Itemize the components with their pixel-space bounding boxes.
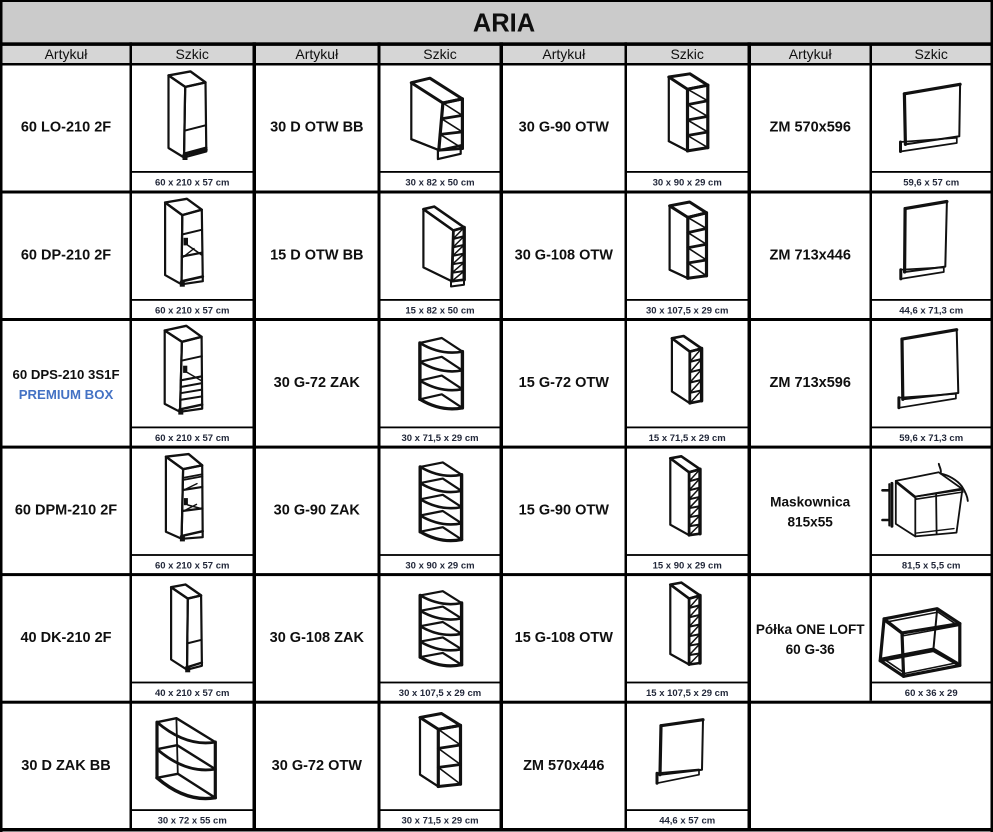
svg-text:30 G-108 ZAK: 30 G-108 ZAK [270,630,365,646]
svg-text:Szkic: Szkic [914,46,947,62]
svg-text:15 x 82 x 50 cm: 15 x 82 x 50 cm [405,305,474,316]
svg-text:59,6 x 57 cm: 59,6 x 57 cm [903,177,959,188]
svg-text:60 DPS-210 3S1F: 60 DPS-210 3S1F [12,367,119,382]
svg-text:40 DK-210 2F: 40 DK-210 2F [20,630,111,646]
svg-text:ZM 570x446: ZM 570x446 [523,758,604,774]
svg-text:30 x 71,5 x 29 cm: 30 x 71,5 x 29 cm [401,433,478,444]
svg-text:60 x 36 x 29: 60 x 36 x 29 [905,688,958,699]
svg-text:15 G-108 OTW: 15 G-108 OTW [515,630,614,646]
svg-text:ZM 713x446: ZM 713x446 [769,248,850,264]
svg-text:15 G-72 OTW: 15 G-72 OTW [519,375,610,391]
svg-text:Artykuł: Artykuł [295,46,339,62]
svg-text:30 x 72 x 55 cm: 30 x 72 x 55 cm [158,816,227,827]
svg-text:44,6 x 71,3 cm: 44,6 x 71,3 cm [899,305,963,316]
svg-text:Artykuł: Artykuł [789,46,833,62]
svg-text:Artykuł: Artykuł [542,46,586,62]
svg-text:30 D ZAK BB: 30 D ZAK BB [21,758,110,774]
svg-text:81,5 x 5,5 cm: 81,5 x 5,5 cm [902,561,961,572]
svg-text:Artykuł: Artykuł [45,46,89,62]
svg-text:815x55: 815x55 [788,515,834,530]
svg-text:15 G-90 OTW: 15 G-90 OTW [519,503,610,519]
svg-text:59,6 x 71,3 cm: 59,6 x 71,3 cm [899,433,963,444]
svg-text:60 x 210 x 57 cm: 60 x 210 x 57 cm [155,305,229,316]
svg-text:ZM 570x596: ZM 570x596 [769,120,850,136]
svg-text:60 DPM-210 2F: 60 DPM-210 2F [15,503,117,519]
svg-text:ZM 713x596: ZM 713x596 [769,375,850,391]
svg-text:60 LO-210 2F: 60 LO-210 2F [21,120,111,136]
svg-text:30 x 107,5 x 29 cm: 30 x 107,5 x 29 cm [399,688,481,699]
svg-text:15 x 71,5 x 29 cm: 15 x 71,5 x 29 cm [649,433,726,444]
svg-text:30 x 82 x 50 cm: 30 x 82 x 50 cm [405,177,474,188]
svg-text:30 G-90 ZAK: 30 G-90 ZAK [274,503,361,519]
svg-text:60 x 210 x 57 cm: 60 x 210 x 57 cm [155,561,229,572]
svg-text:60 x 210 x 57 cm: 60 x 210 x 57 cm [155,177,229,188]
svg-text:15 D OTW BB: 15 D OTW BB [270,248,363,264]
svg-text:30 G-72 OTW: 30 G-72 OTW [272,758,363,774]
svg-text:30 x 107,5 x 29 cm: 30 x 107,5 x 29 cm [646,305,728,316]
svg-text:40 x 210 x 57 cm: 40 x 210 x 57 cm [155,688,229,699]
svg-text:Szkic: Szkic [423,46,456,62]
svg-text:Szkic: Szkic [175,46,208,62]
svg-text:ARIA: ARIA [473,10,535,38]
svg-text:PREMIUM BOX: PREMIUM BOX [19,387,114,402]
svg-text:15 x 90 x 29 cm: 15 x 90 x 29 cm [653,561,722,572]
svg-text:30 D OTW BB: 30 D OTW BB [270,120,363,136]
svg-text:Maskownica: Maskownica [770,495,851,510]
svg-text:30 G-108 OTW: 30 G-108 OTW [515,248,614,264]
svg-text:30 x 71,5 x 29 cm: 30 x 71,5 x 29 cm [401,816,478,827]
svg-text:30 x 90 x 29 cm: 30 x 90 x 29 cm [653,177,722,188]
svg-text:60 DP-210 2F: 60 DP-210 2F [21,248,111,264]
svg-text:15 x 107,5 x 29 cm: 15 x 107,5 x 29 cm [646,688,728,699]
svg-text:44,6 x 57 cm: 44,6 x 57 cm [659,816,715,827]
svg-text:60 x 210 x 57 cm: 60 x 210 x 57 cm [155,433,229,444]
svg-text:Szkic: Szkic [670,46,703,62]
svg-text:60 G-36: 60 G-36 [786,642,836,657]
svg-text:30 G-90 OTW: 30 G-90 OTW [519,120,610,136]
svg-text:Półka ONE LOFT: Półka ONE LOFT [756,622,865,637]
svg-text:30 G-72 ZAK: 30 G-72 ZAK [274,375,361,391]
svg-text:30 x 90 x 29 cm: 30 x 90 x 29 cm [405,561,474,572]
